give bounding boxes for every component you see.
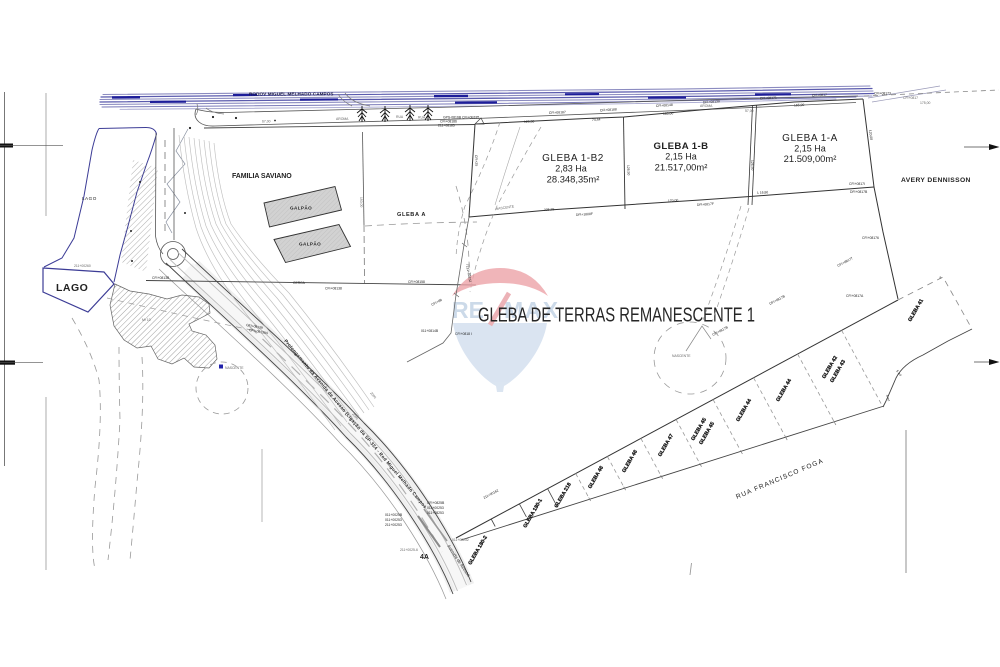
svg-text:2,83 Ha: 2,83 Ha	[555, 164, 587, 174]
svg-text:GLEBA 1-B2: GLEBA 1-B2	[542, 153, 604, 164]
svg-text:LAGO: LAGO	[82, 196, 97, 201]
svg-text:CFI+08158: CFI+08158	[408, 280, 425, 284]
svg-text:CFI+0813B: CFI+0813B	[152, 276, 170, 280]
svg-text:AROMA: AROMA	[336, 117, 349, 121]
svg-text:GLEBA 1-A: GLEBA 1-A	[782, 133, 838, 144]
svg-text:011+0025B: 011+0025B	[385, 513, 403, 517]
svg-text:165,00: 165,00	[663, 111, 674, 116]
svg-text:211+0025-6: 211+0025-6	[400, 548, 418, 552]
svg-text:011+00253: 011+00253	[385, 518, 402, 522]
svg-text:011+00253: 011+00253	[427, 506, 444, 510]
svg-text:CFI+25: CFI+25	[474, 155, 478, 166]
svg-text:21.509,00m²: 21.509,00m²	[784, 153, 837, 164]
svg-text:M³ 10: M³ 10	[142, 318, 151, 322]
svg-text:150,00: 150,00	[359, 197, 363, 208]
svg-text:GLEBA DE TERRAS REMANESCENTE 1: GLEBA DE TERRAS REMANESCENTE 1	[478, 305, 755, 327]
svg-text:CFI+0818 I: CFI+0818 I	[455, 332, 472, 336]
svg-text:GLEBA A: GLEBA A	[397, 212, 426, 218]
svg-text:67,00: 67,00	[262, 120, 271, 124]
svg-text:GALPÃO: GALPÃO	[290, 205, 312, 211]
svg-text:AROMA: AROMA	[700, 104, 713, 108]
svg-text:74,44: 74,44	[592, 118, 601, 122]
svg-text:FAMILIA SAVIANO: FAMILIA SAVIANO	[232, 173, 292, 180]
svg-text:1 16,80: 1 16,80	[757, 190, 769, 195]
svg-text:RODOV MIGUEL MELHADO CAMPOS: RODOV MIGUEL MELHADO CAMPOS	[249, 92, 334, 97]
svg-text:2,15 Ha: 2,15 Ha	[665, 152, 697, 162]
svg-text:2,15 Ha: 2,15 Ha	[794, 144, 826, 154]
svg-text:CFI+08176: CFI+08176	[862, 236, 879, 240]
svg-text:CFI+0817A: CFI+0817A	[846, 294, 864, 298]
svg-text:RUA: RUA	[418, 116, 426, 120]
svg-text:011+00252: 011+00252	[452, 538, 469, 542]
svg-text:211+00253: 211+00253	[385, 523, 402, 527]
svg-text:CFI+0817: CFI+0817	[903, 96, 918, 100]
svg-text:GALPÃO: GALPÃO	[299, 241, 321, 247]
svg-text:DFI+0817B: DFI+0817B	[850, 190, 868, 194]
svg-text:AVERY DENNISSON: AVERY DENNISSON	[901, 177, 971, 184]
svg-text:NASCENTE: NASCENTE	[672, 354, 691, 358]
svg-text:211+00260: 211+00260	[74, 264, 91, 268]
svg-text:126,50: 126,50	[626, 165, 631, 176]
svg-text:CFI+0825B: CFI+0825B	[427, 501, 445, 505]
svg-text:126,50: 126,50	[750, 160, 754, 171]
svg-text:165,00: 165,00	[794, 103, 805, 108]
svg-text:CFI+08138: CFI+08138	[325, 287, 342, 291]
svg-text:NASCENTE: NASCENTE	[225, 366, 244, 370]
svg-text:CERCA: CERCA	[293, 281, 306, 285]
svg-text:211+08185: 211+08185	[438, 124, 455, 128]
svg-text:CFI+0817: CFI+0817	[812, 93, 827, 98]
svg-text:28.348,35m²: 28.348,35m²	[547, 174, 600, 185]
svg-text:LAGO: LAGO	[56, 282, 88, 294]
svg-text:21.517,00m²: 21.517,00m²	[655, 162, 708, 173]
svg-text:170,00: 170,00	[668, 198, 679, 203]
svg-text:4A: 4A	[420, 554, 429, 561]
svg-text:RUA: RUA	[396, 115, 404, 119]
svg-text:175,00: 175,00	[920, 101, 930, 105]
svg-text:CFI+0817I: CFI+0817I	[849, 182, 865, 186]
svg-text:CFI+08173: CFI+08173	[874, 92, 891, 96]
svg-text:125,50: 125,50	[524, 119, 535, 124]
svg-text:225,29: 225,29	[544, 207, 555, 212]
svg-text:GLEBA 1-B: GLEBA 1-B	[654, 141, 709, 152]
svg-text:011+0814B: 011+0814B	[421, 329, 439, 333]
svg-text:011+08253: 011+08253	[427, 511, 444, 515]
